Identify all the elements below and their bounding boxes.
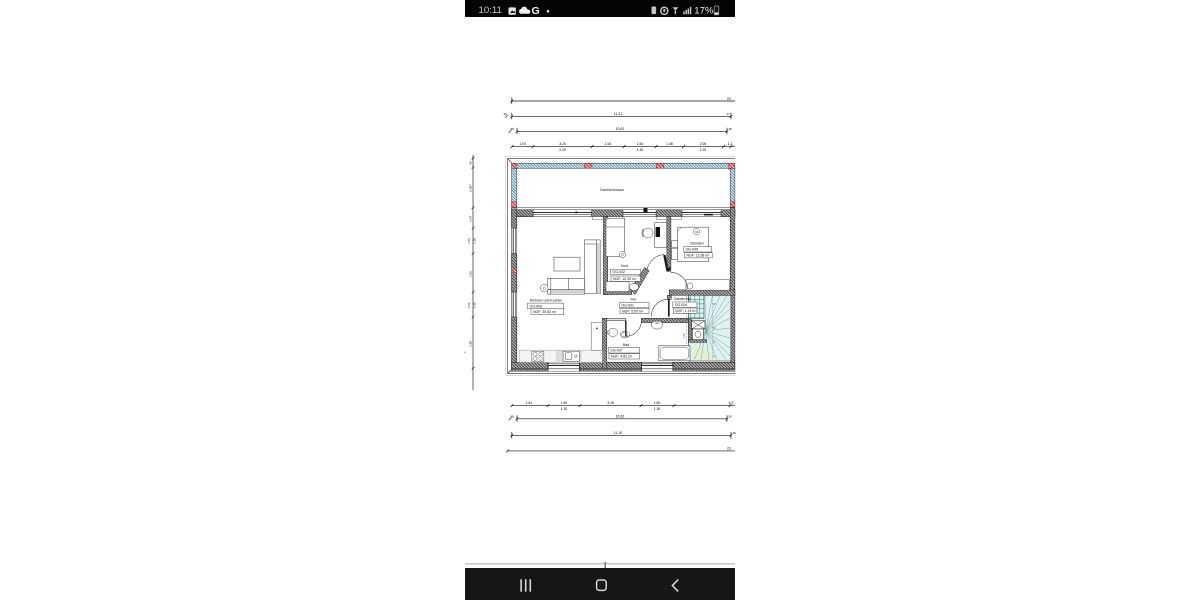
svg-text:OG-007: OG-007 (610, 349, 623, 353)
svg-text:1.38: 1.38 (666, 142, 673, 146)
svg-text:Schlafen: Schlafen (690, 241, 704, 245)
svg-text:11.10: 11.10 (614, 431, 622, 435)
svg-text:10:11: 10:11 (479, 5, 502, 16)
svg-text:1.61: 1.61 (526, 401, 533, 405)
svg-text:40: 40 (469, 161, 473, 165)
svg-text:1.30: 1.30 (637, 148, 644, 152)
svg-text:OG-005: OG-005 (686, 248, 699, 252)
svg-text:1.60: 1.60 (561, 401, 568, 405)
svg-text:Wohnen und Kochen: Wohnen und Kochen (530, 298, 563, 302)
svg-text:Bad: Bad (623, 343, 629, 347)
svg-text:+: + (464, 351, 466, 355)
svg-text:1.98: 1.98 (469, 341, 473, 347)
svg-text:NGF: 10.30 m²: NGF: 10.30 m² (613, 277, 637, 281)
svg-text:NGF: 5.60 m²: NGF: 5.60 m² (622, 309, 644, 313)
svg-text:Dachterrasse: Dachterrasse (600, 187, 625, 192)
svg-text:1.38: 1.38 (682, 333, 686, 339)
svg-text:22.: 22. (727, 97, 732, 101)
svg-text:NGF: 30.82 m²: NGF: 30.82 m² (533, 310, 557, 314)
svg-text:68: 68 (511, 415, 515, 419)
svg-text:1.60: 1.60 (637, 142, 644, 146)
svg-text:1.38: 1.38 (473, 238, 477, 244)
svg-text:3.18: 3.18 (607, 401, 614, 405)
svg-text:1.04: 1.04 (519, 142, 526, 146)
svg-text:10: 10 (713, 326, 716, 330)
svg-text:17%: 17% (694, 6, 714, 17)
svg-text:Kind: Kind (621, 264, 628, 268)
svg-text:11.21: 11.21 (614, 112, 622, 116)
svg-text:17: 17 (727, 112, 731, 116)
svg-text:2.087: 2.087 (469, 184, 473, 192)
svg-text:NGF: 4.82 m²: NGF: 4.82 m² (611, 355, 633, 359)
svg-text:1.63: 1.63 (467, 302, 471, 308)
svg-text:2.00: 2.00 (700, 142, 707, 146)
svg-text:20: 20 (504, 112, 508, 116)
svg-text:18: 18 (713, 302, 716, 306)
svg-text:1.30: 1.30 (473, 302, 477, 308)
svg-text:NGF: 11.68 m²: NGF: 11.68 m² (687, 254, 711, 258)
svg-text:2.52: 2.52 (469, 271, 473, 277)
svg-text:04: 04 (695, 230, 698, 234)
svg-text:6.3: 6.3 (729, 401, 734, 405)
svg-text:Flur: Flur (630, 297, 637, 301)
svg-text:1.63: 1.63 (467, 238, 471, 244)
svg-text:1.2: 1.2 (728, 142, 733, 146)
svg-text:OG-001: OG-001 (622, 304, 635, 308)
svg-text:OG-002: OG-002 (613, 270, 626, 274)
svg-text:46: 46 (729, 127, 733, 131)
svg-text:3.20: 3.20 (559, 142, 566, 146)
svg-text:23.: 23. (727, 447, 732, 451)
svg-text:1.30: 1.30 (654, 407, 661, 411)
svg-text:20: 20 (729, 415, 733, 419)
svg-text:40: 40 (733, 431, 737, 435)
svg-text:1.60: 1.60 (654, 401, 661, 405)
svg-text:10.62: 10.62 (616, 414, 625, 418)
svg-text:G: G (532, 5, 540, 17)
svg-text:1.30: 1.30 (561, 407, 568, 411)
svg-text:2.20: 2.20 (700, 148, 707, 152)
svg-text:68: 68 (511, 127, 515, 131)
svg-text:Garderobe: Garderobe (674, 297, 691, 301)
svg-text:NGF: 1.14 m²: NGF: 1.14 m² (675, 309, 697, 313)
svg-text:OG-004: OG-004 (675, 303, 688, 307)
svg-text:1.64: 1.64 (605, 142, 612, 146)
svg-text:10.62: 10.62 (616, 127, 625, 131)
svg-text:1.04: 1.04 (469, 216, 473, 222)
svg-text:2.20: 2.20 (559, 148, 566, 152)
svg-text:OG-006: OG-006 (530, 304, 543, 308)
